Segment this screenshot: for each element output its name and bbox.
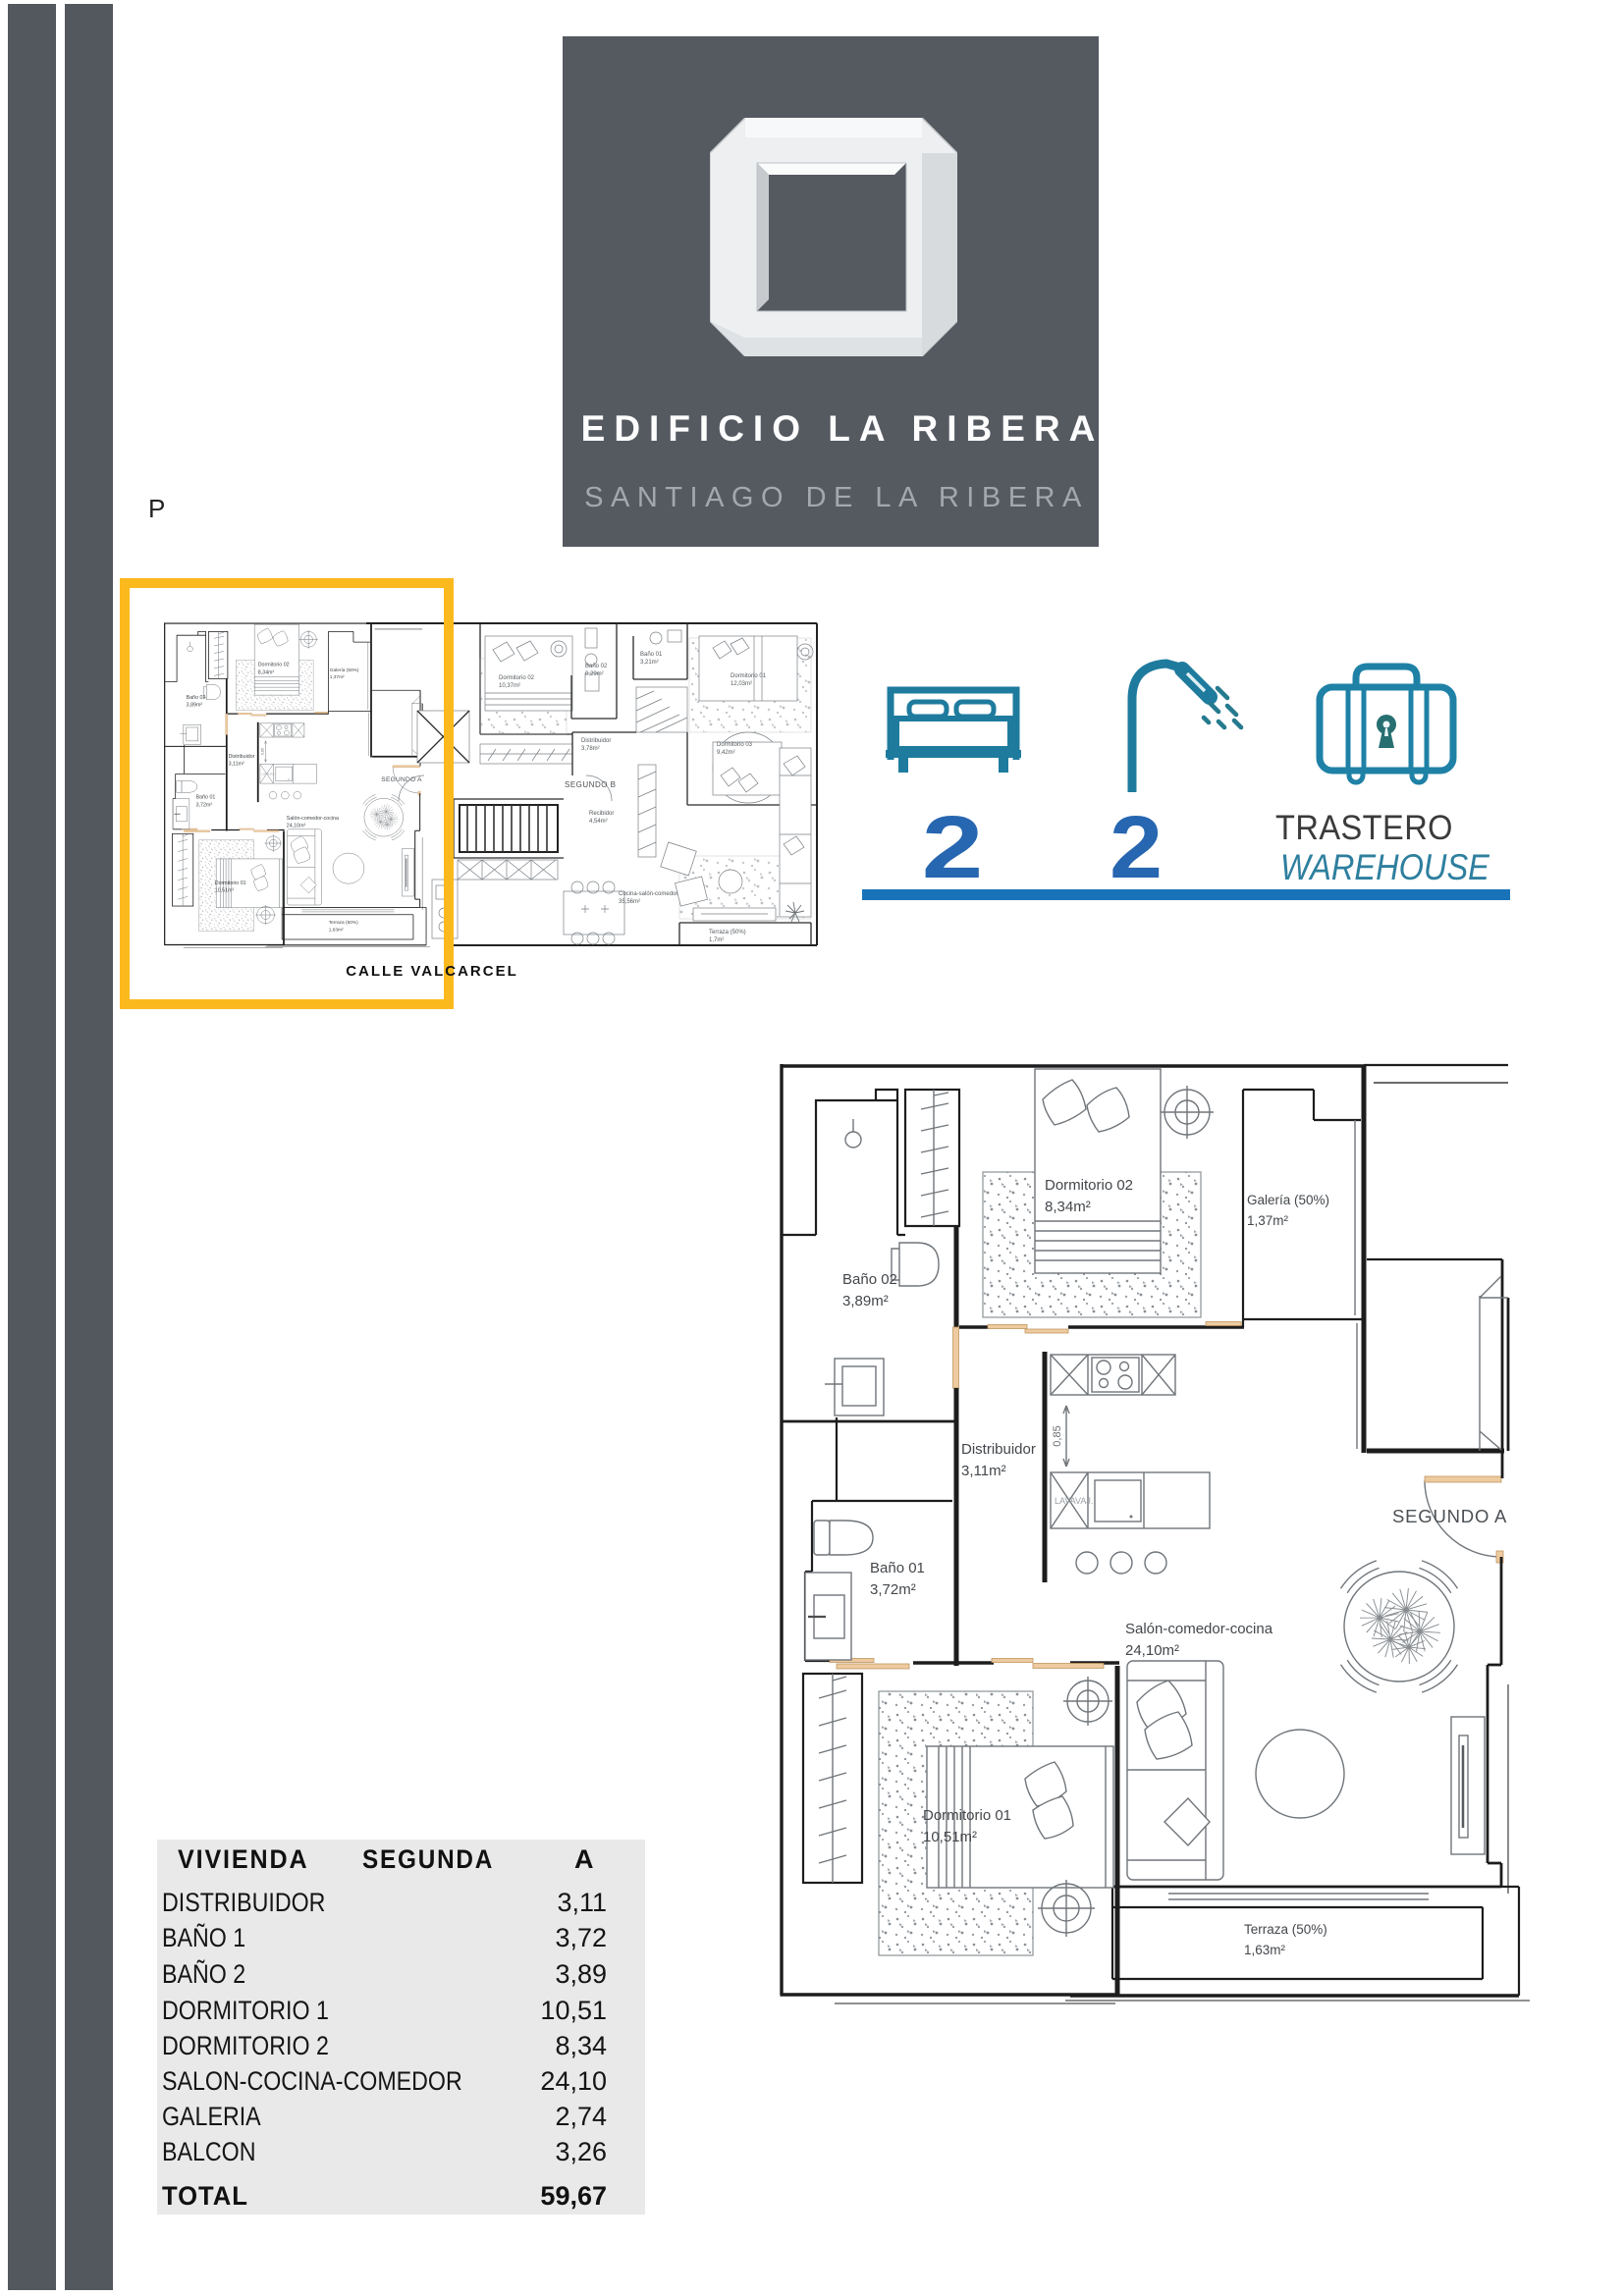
- svg-text:Dormitorio 01: Dormitorio 01: [923, 1807, 1011, 1824]
- svg-text:Baño 01: Baño 01: [870, 1560, 925, 1576]
- svg-text:Dormitorio 02: Dormitorio 02: [1045, 1177, 1133, 1194]
- svg-text:10,51m²: 10,51m²: [923, 1829, 977, 1845]
- svg-text:Galería (50%): Galería (50%): [1247, 1193, 1329, 1207]
- svg-text:0,85: 0,85: [1052, 1425, 1063, 1446]
- svg-text:Terraza (50%): Terraza (50%): [709, 930, 746, 935]
- svg-text:8,34m²: 8,34m²: [1045, 1199, 1091, 1215]
- svg-text:3,21m²: 3,21m²: [640, 660, 659, 666]
- svg-text:Cocina-salón-comedor: Cocina-salón-comedor: [619, 891, 677, 897]
- svg-text:1,63m²: 1,63m²: [1244, 1943, 1286, 1957]
- svg-text:3,11m²: 3,11m²: [961, 1463, 1006, 1479]
- svg-text:Distribuidor: Distribuidor: [581, 738, 611, 744]
- svg-text:Baño 01: Baño 01: [640, 652, 663, 658]
- svg-text:12,03m²: 12,03m²: [731, 681, 752, 687]
- svg-text:Recibidor: Recibidor: [589, 811, 614, 817]
- svg-text:3,89m²: 3,89m²: [842, 1293, 889, 1309]
- svg-text:4,54m²: 4,54m²: [589, 819, 608, 825]
- svg-text:3,78m²: 3,78m²: [581, 746, 600, 752]
- svg-text:Distribuidor: Distribuidor: [961, 1441, 1036, 1458]
- svg-text:35,56m²: 35,56m²: [619, 899, 640, 905]
- svg-text:9,42m²: 9,42m²: [717, 750, 735, 756]
- svg-text:1,7m²: 1,7m²: [709, 937, 724, 943]
- svg-text:3,72m²: 3,72m²: [870, 1581, 916, 1598]
- svg-text:10,37m²: 10,37m²: [499, 683, 520, 689]
- svg-text:Dormitorio 01: Dormitorio 01: [731, 673, 767, 679]
- svg-text:Salón-comedor-cocina: Salón-comedor-cocina: [1125, 1621, 1273, 1637]
- svg-text:Dormitorio 02: Dormitorio 02: [499, 675, 535, 681]
- svg-text:Baño 02: Baño 02: [585, 664, 608, 669]
- svg-text:Baño 02: Baño 02: [842, 1271, 897, 1288]
- svg-text:SEGUNDO A: SEGUNDO A: [1392, 1506, 1507, 1526]
- svg-text:LAVAVAJ.: LAVAVAJ.: [1055, 1496, 1093, 1506]
- svg-text:Dormitorio 03: Dormitorio 03: [717, 742, 753, 748]
- svg-text:24,10m²: 24,10m²: [1125, 1642, 1179, 1659]
- svg-text:0,29m²: 0,29m²: [585, 671, 604, 677]
- svg-text:SEGUNDO B: SEGUNDO B: [565, 780, 617, 789]
- svg-text:1,37m²: 1,37m²: [1247, 1213, 1289, 1228]
- svg-text:Terraza (50%): Terraza (50%): [1244, 1922, 1327, 1937]
